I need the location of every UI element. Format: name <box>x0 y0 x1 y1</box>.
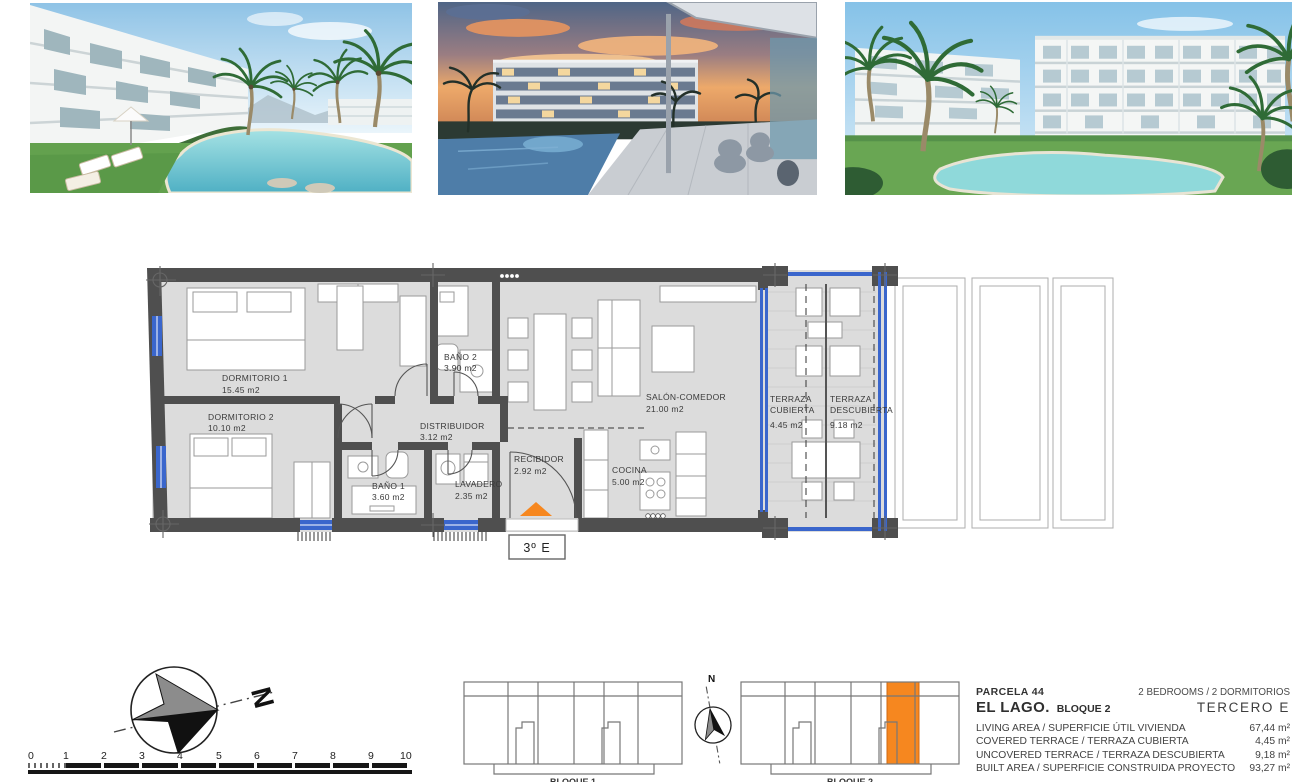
dining-table <box>534 314 566 410</box>
mini-north-arrow: N <box>690 670 736 770</box>
north-label: N <box>708 674 715 685</box>
room-area: 3.60 m2 <box>372 492 405 502</box>
area-row: COVERED TERRACE / TERRAZA CUBIERTA4,45 m… <box>976 735 1290 748</box>
room-label: TERRAZA <box>770 394 812 404</box>
room-area: 5.00 m2 <box>612 477 645 487</box>
render-photo-pool-day <box>30 3 412 193</box>
block-label: BLOQUE 2 <box>827 777 873 782</box>
vent-combs <box>298 532 486 541</box>
room-label: BAÑO 1 <box>372 481 405 491</box>
area-row: BUILT AREA / SUPERFICIE CONSTRUIDA PROYE… <box>976 762 1290 775</box>
key-plan-bloque-1: BLOQUE 1 <box>458 678 688 782</box>
room-area: 2.92 m2 <box>514 466 547 476</box>
room-label: LAVADERO <box>455 479 503 489</box>
armchair <box>652 326 694 372</box>
plan-sheet: 3º E DORMITORIO 1 15.45 m2 DORMITORIO 2 … <box>0 0 1312 784</box>
room-area: 9.18 m2 <box>830 420 863 430</box>
area-table: LIVING AREA / SUPERFICIE ÚTIL VIVIENDA67… <box>976 722 1290 776</box>
block-label: BLOQUE 1 <box>550 777 596 782</box>
project-name: EL LAGO.BLOQUE 2 <box>976 699 1110 717</box>
area-row: UNCOVERED TERRACE / TERRAZA DESCUBIERTA9… <box>976 749 1290 762</box>
room-label: COCINA <box>612 465 647 475</box>
scale-ticks: 0 1 2 3 4 5 6 7 8 9 10 <box>28 750 412 763</box>
room-label: BAÑO 2 <box>444 352 477 362</box>
room-label: DISTRIBUIDOR <box>420 421 485 431</box>
sideboard <box>660 286 756 302</box>
room-label: DESCUBIERTA <box>830 405 893 415</box>
glass-wall <box>770 38 817 159</box>
room-label: DORMITORIO 1 <box>222 373 288 383</box>
room-area: 2.35 m2 <box>455 491 488 501</box>
column <box>666 14 671 173</box>
bedrooms-label: 2 BEDROOMS / 2 DORMITORIOS <box>1138 687 1290 698</box>
render-photo-buildings-day <box>845 2 1292 195</box>
room-label: CUBIERTA <box>770 405 815 415</box>
hedge <box>845 135 1292 142</box>
key-plan-bloque-2: BLOQUE 2 <box>735 678 965 782</box>
unit-label: 3º E <box>523 541 550 555</box>
room-area: 21.00 m2 <box>646 404 684 414</box>
room-area: 3.90 m2 <box>444 363 477 373</box>
room-label: RECIBIDOR <box>514 454 564 464</box>
room-label: TERRAZA <box>830 394 872 404</box>
room-label: DORMITORIO 2 <box>208 412 274 422</box>
summary-block: PARCELA 44 2 BEDROOMS / 2 DORMITORIOS EL… <box>976 686 1290 776</box>
vase <box>777 160 799 186</box>
room-label: SALÓN-COMEDOR <box>646 392 726 402</box>
floor-plan: 3º E DORMITORIO 1 15.45 m2 DORMITORIO 2 … <box>145 258 1165 564</box>
entrance-threshold <box>506 519 578 531</box>
room-area: 4.45 m2 <box>770 420 803 430</box>
north-label: N <box>245 684 280 712</box>
scale-bar: 0 1 2 3 4 5 6 7 8 9 10 <box>28 750 412 780</box>
room-area: 15.45 m2 <box>222 385 260 395</box>
highlighted-unit <box>887 682 919 764</box>
render-photo-terrace-dusk <box>438 2 817 195</box>
compass-rose: N <box>112 660 284 762</box>
area-row: LIVING AREA / SUPERFICIE ÚTIL VIVIENDA67… <box>976 722 1290 735</box>
room-area: 10.10 m2 <box>208 423 246 433</box>
parcel-label: PARCELA 44 <box>976 686 1044 698</box>
floor-unit-label: TERCERO E <box>1197 700 1290 715</box>
building-right <box>1035 36 1285 137</box>
room-area: 3.12 m2 <box>420 432 453 442</box>
neighbour-terraces <box>895 278 1113 528</box>
